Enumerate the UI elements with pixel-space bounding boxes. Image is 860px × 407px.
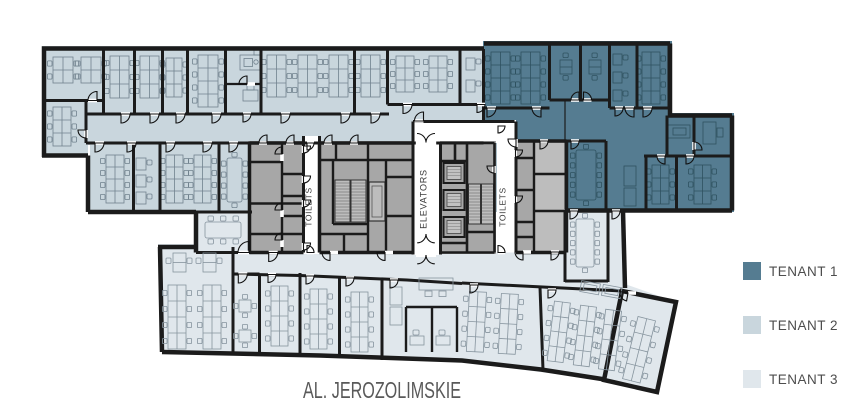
svg-text:AL. JEROZOLIMSKIE: AL. JEROZOLIMSKIE (303, 377, 461, 403)
svg-text:ELEVATORS: ELEVATORS (419, 169, 429, 229)
svg-text:TOILETS: TOILETS (304, 187, 314, 226)
svg-text:TOILETS: TOILETS (498, 187, 508, 226)
svg-text:TENANT 2: TENANT 2 (769, 318, 838, 333)
svg-text:TENANT 3: TENANT 3 (769, 372, 838, 387)
svg-text:TENANT 1: TENANT 1 (769, 264, 838, 279)
